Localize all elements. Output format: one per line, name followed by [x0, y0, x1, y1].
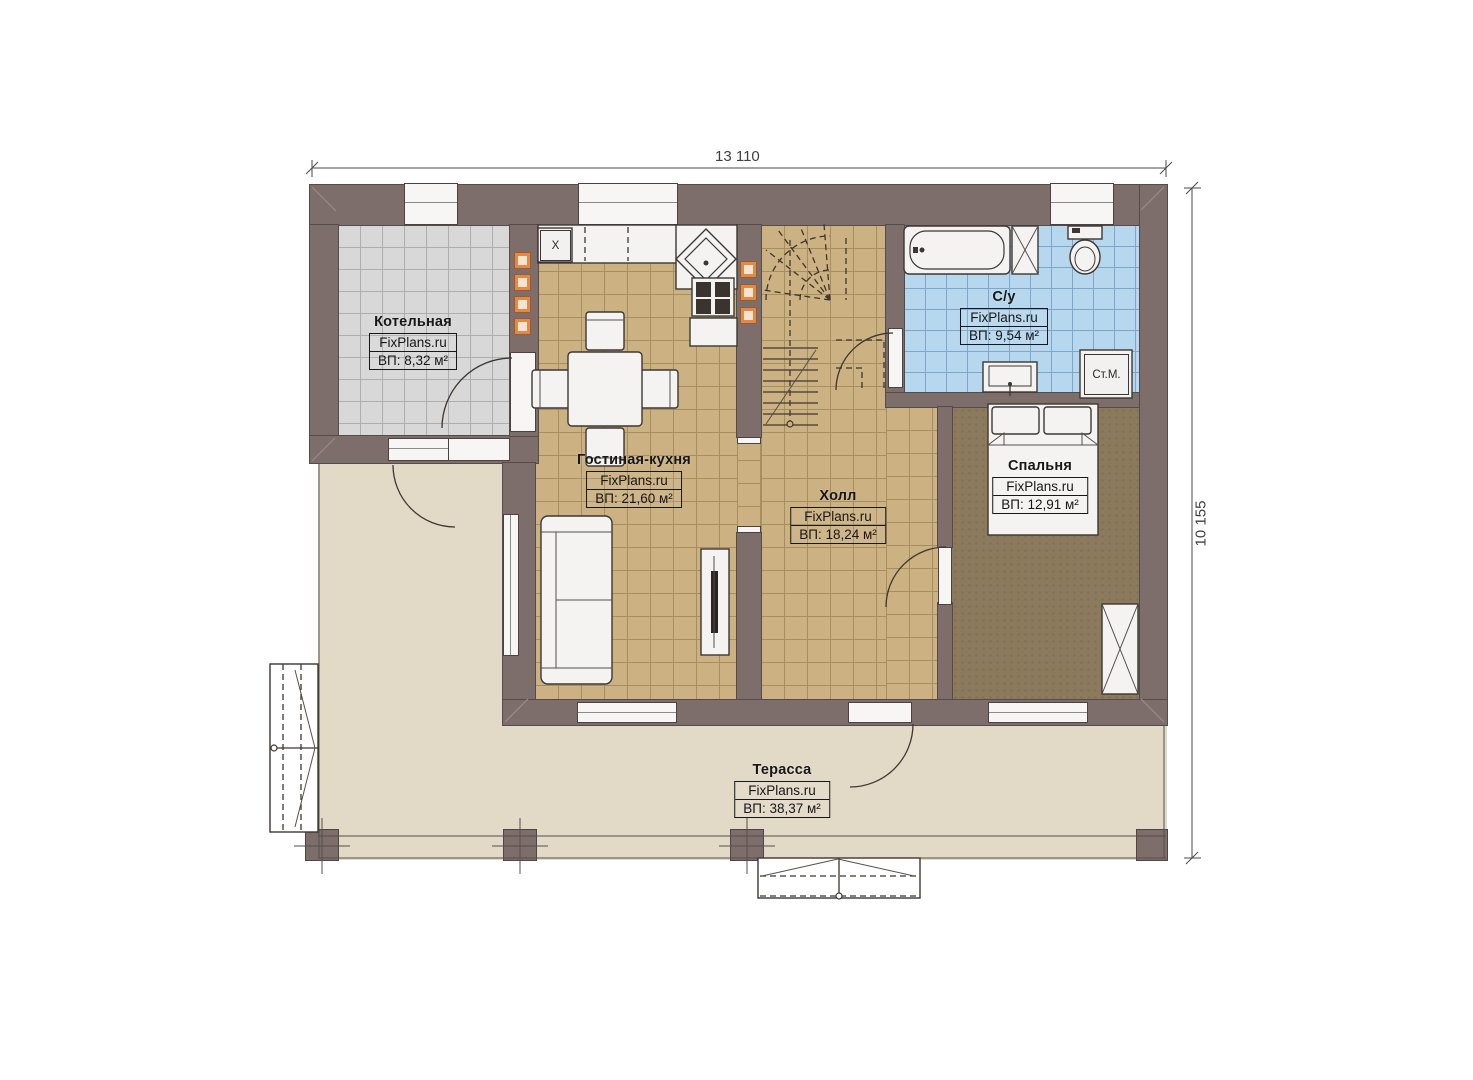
watermark-text: FixPlans.ru: [961, 309, 1047, 327]
bath-cabinet: [1012, 226, 1038, 274]
sofa: [541, 516, 612, 684]
room-info-box: FixPlans.ru ВП: 12,91 м²: [992, 477, 1088, 514]
room-info-box: FixPlans.ru ВП: 18,24 м²: [790, 507, 886, 544]
bathroom-sink: [983, 362, 1037, 396]
floor-plan-canvas: 13 110 10 155 Котельная FixPlans.ru ВП: …: [0, 0, 1473, 1080]
kitchen-cabinet: [690, 318, 737, 346]
toilet: [1068, 226, 1102, 274]
room-area: ВП: 9,54 м²: [961, 327, 1047, 344]
room-info-box: FixPlans.ru ВП: 9,54 м²: [960, 308, 1048, 345]
watermark-text: FixPlans.ru: [735, 782, 829, 800]
wardrobe: [1102, 604, 1138, 694]
room-name: Гостиная-кухня: [577, 452, 691, 468]
room-info-box: FixPlans.ru ВП: 38,37 м²: [734, 781, 830, 818]
watermark-text: FixPlans.ru: [993, 478, 1087, 496]
room-name: Холл: [819, 488, 856, 504]
dining-table: [532, 312, 678, 466]
room-label-terrace: Терасса FixPlans.ru ВП: 38,37 м²: [734, 762, 830, 818]
side-steps: [270, 664, 318, 832]
room-label-bedroom: Спальня FixPlans.ru ВП: 12,91 м²: [992, 458, 1088, 514]
room-label-living: Гостиная-кухня FixPlans.ru ВП: 21,60 м²: [577, 452, 691, 508]
room-label-boiler: Котельная FixPlans.ru ВП: 8,32 м²: [369, 314, 457, 370]
room-area: ВП: 12,91 м²: [993, 496, 1087, 513]
watermark-text: FixPlans.ru: [791, 508, 885, 526]
watermark-text: FixPlans.ru: [587, 472, 681, 490]
dimension-width-label: 13 110: [715, 148, 760, 165]
tv-stand: [701, 549, 729, 655]
watermark-text: FixPlans.ru: [370, 334, 456, 352]
room-label-hall: Холл FixPlans.ru ВП: 18,24 м²: [790, 488, 886, 544]
room-name: Котельная: [374, 314, 452, 330]
room-area: ВП: 38,37 м²: [735, 800, 829, 817]
stove: [692, 278, 734, 316]
terrace-steps: [758, 858, 920, 899]
room-area: ВП: 8,32 м²: [370, 352, 456, 369]
room-name: Терасса: [753, 762, 812, 778]
room-area: ВП: 18,24 м²: [791, 526, 885, 543]
room-info-box: FixPlans.ru ВП: 21,60 м²: [586, 471, 682, 508]
bathtub: [904, 226, 1010, 274]
dimension-height-label: 10 155: [1192, 501, 1209, 547]
room-info-box: FixPlans.ru ВП: 8,32 м²: [369, 333, 457, 370]
room-area: ВП: 21,60 м²: [587, 490, 681, 507]
room-name: Спальня: [1008, 458, 1072, 474]
room-label-bath: С/у FixPlans.ru ВП: 9,54 м²: [960, 289, 1048, 345]
staircase: [763, 224, 884, 427]
kitchen-cell-label: X: [540, 230, 571, 261]
washing-machine-label: Ст.М.: [1084, 354, 1129, 395]
room-name: С/у: [992, 289, 1015, 305]
